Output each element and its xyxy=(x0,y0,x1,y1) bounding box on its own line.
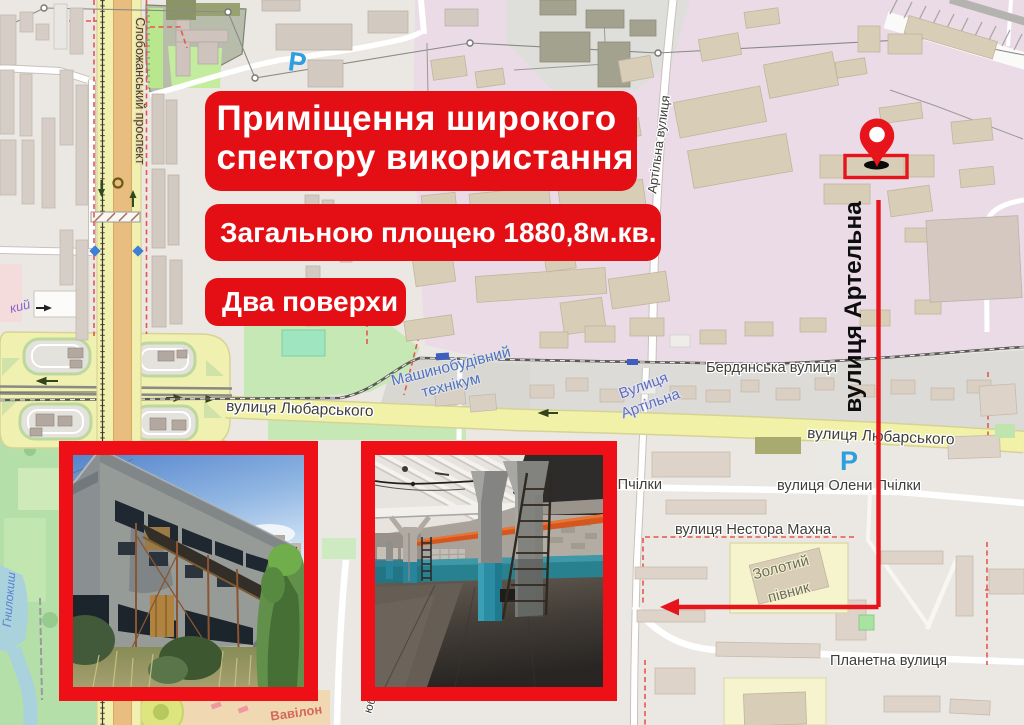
svg-text:P: P xyxy=(840,446,858,476)
svg-text:Слобожанський проспект: Слобожанський проспект xyxy=(133,17,147,165)
svg-text:Планетна вулиця: Планетна вулиця xyxy=(830,653,947,669)
svg-text:вулиця Нестора Махна: вулиця Нестора Махна xyxy=(675,522,832,538)
svg-text:вулиця Олени Пчілки: вулиця Олени Пчілки xyxy=(777,478,921,494)
svg-text:Бердянська вулиця: Бердянська вулиця xyxy=(706,360,837,376)
